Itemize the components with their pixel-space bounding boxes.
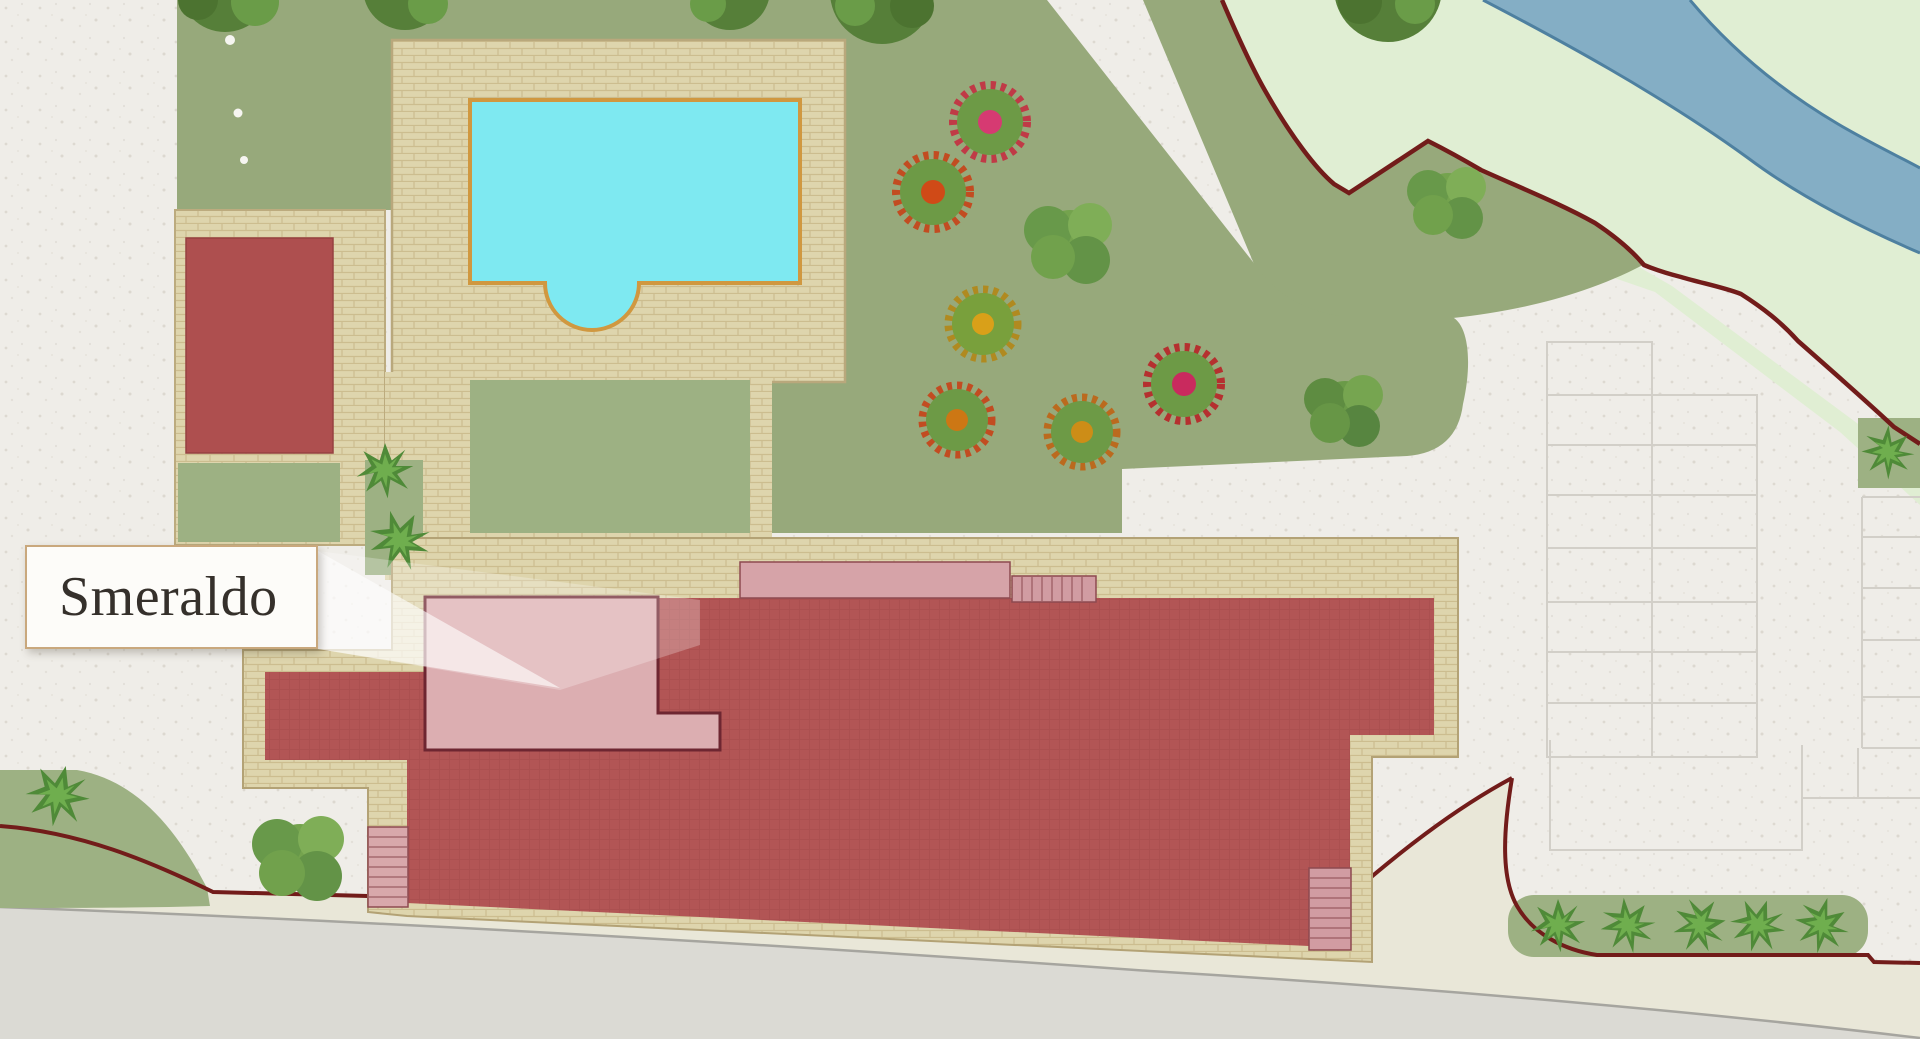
lawn-panel-west: [178, 463, 340, 542]
building-label-text: Smeraldo: [59, 565, 278, 629]
site-plan-map: Smeraldo: [0, 0, 1920, 1039]
bush-tree-band: [1407, 167, 1486, 239]
bush-tree-lobe: [1304, 375, 1383, 447]
stairs-southwest: [368, 827, 408, 907]
site-plan-canvas: [0, 0, 1920, 1039]
outbuilding[interactable]: [186, 238, 333, 453]
lawn-panel-central: [470, 380, 750, 533]
building-label-smeraldo[interactable]: Smeraldo: [25, 545, 318, 649]
roof-band: [740, 562, 1010, 598]
bush-tree-lawn: [1024, 203, 1112, 284]
stairs-top: [1012, 576, 1096, 602]
stairs-southeast: [1309, 868, 1351, 950]
bush-tree-courtyard: [252, 816, 344, 901]
